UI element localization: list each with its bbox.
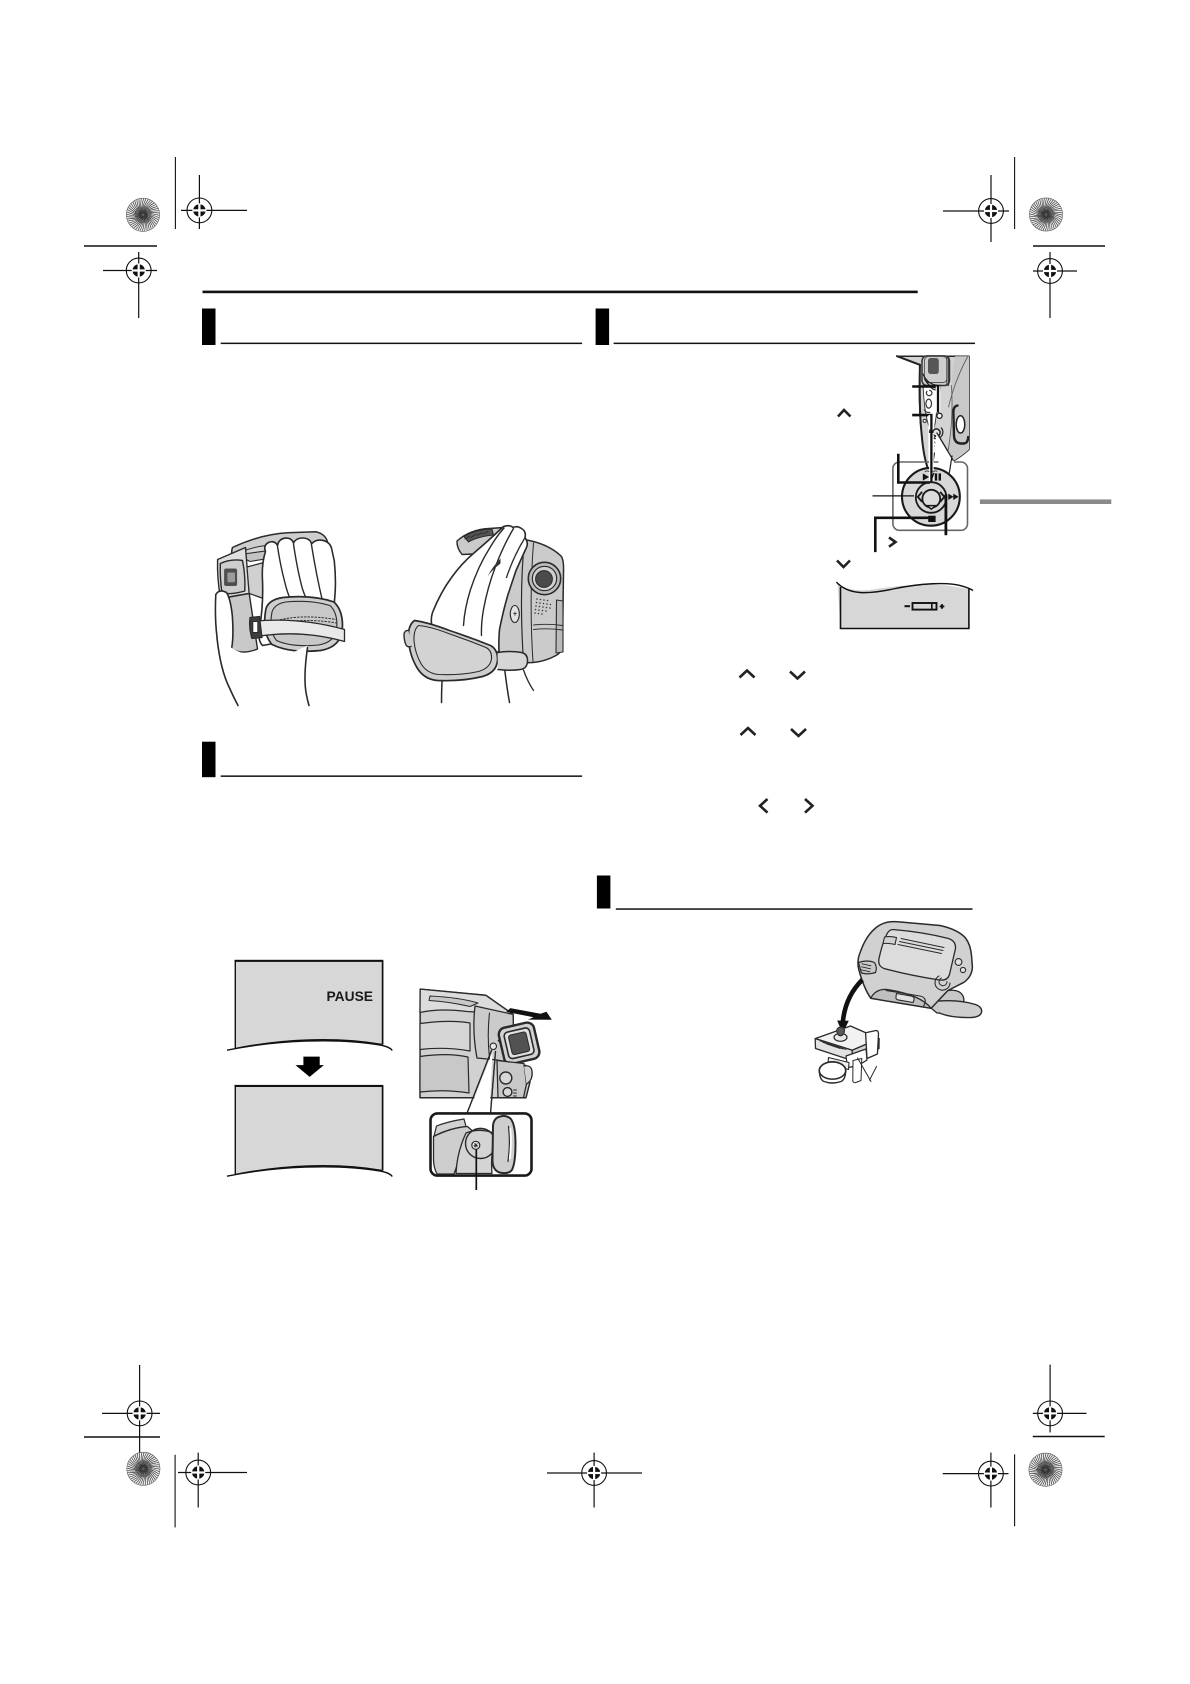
svg-text:PAUSE: PAUSE — [327, 989, 374, 1004]
